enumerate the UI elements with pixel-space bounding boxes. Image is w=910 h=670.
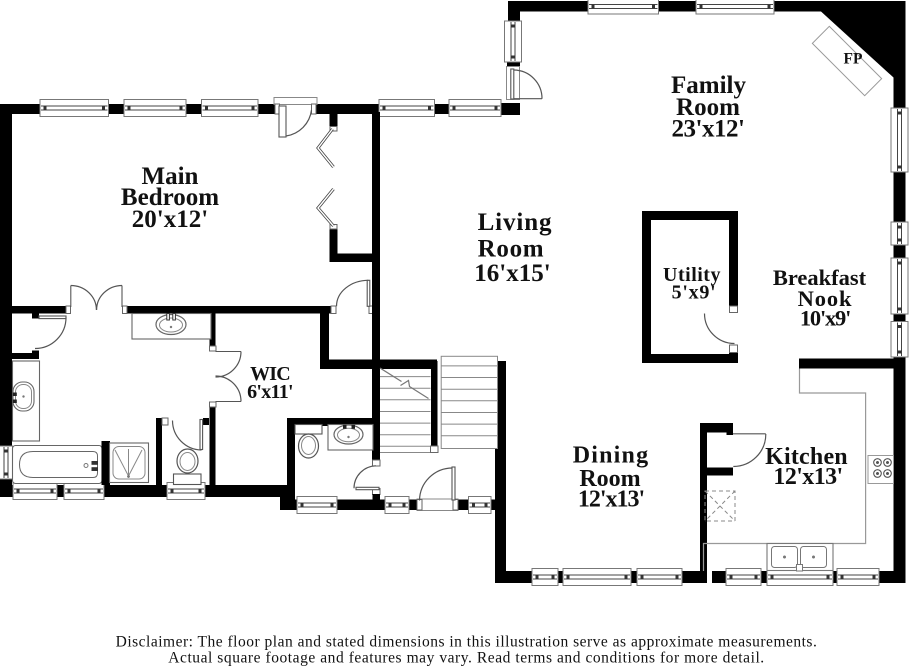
svg-text:16'x15': 16'x15' [474,260,550,287]
svg-text:5'x9': 5'x9' [672,282,717,304]
svg-text:Living: Living [478,209,553,236]
svg-text:20'x12': 20'x12' [132,206,208,233]
svg-text:23'x12': 23'x12' [672,116,745,143]
svg-text:12'x13': 12'x13' [773,464,842,490]
svg-text:Actual square footage and feat: Actual square footage and features may v… [168,650,764,667]
svg-text:Disclaimer: The floor plan and: Disclaimer: The floor plan and stated di… [116,634,818,651]
svg-text:Room: Room [478,236,545,263]
svg-text:12'x13': 12'x13' [578,487,644,513]
svg-text:FP: FP [844,51,863,68]
svg-text:Dining: Dining [573,443,650,469]
svg-text:10'x9': 10'x9' [800,306,850,331]
svg-text:6'x11': 6'x11' [247,381,293,403]
